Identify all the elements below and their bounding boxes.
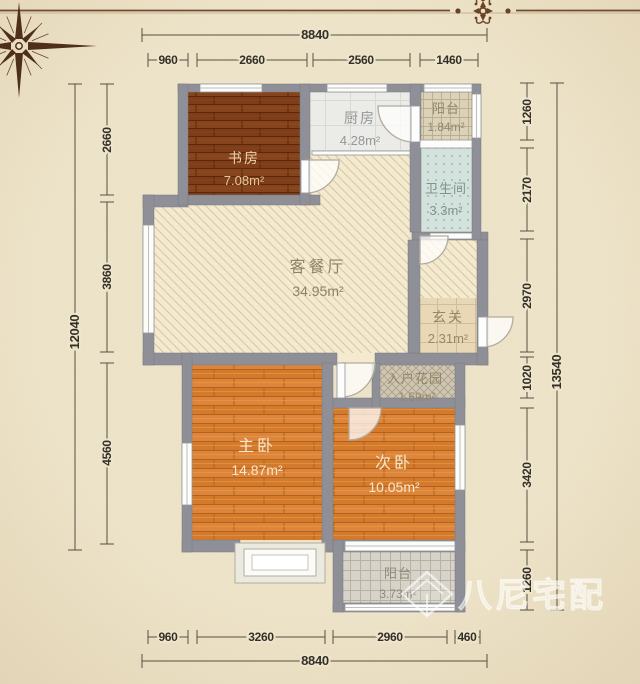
dim-right-0: 1260 [520, 99, 534, 125]
dim-right-4: 3420 [520, 462, 534, 488]
watermark-text: 八尼宅配 [458, 576, 606, 615]
kitchen-name-label: 厨房 [344, 110, 376, 126]
dim-bottom-2: 2960 [377, 630, 403, 644]
balcony-top-area-label: 1.84m² [427, 120, 464, 134]
dim-top-total: 8840 [301, 27, 329, 42]
dim-left-2: 4560 [100, 440, 114, 466]
living-dining-area-label: 34.95m² [292, 283, 344, 299]
floor-plan-page: 书房 7.08m² 厨房 4.28m² 阳台 1.84m² 卫生间 3.3m² … [0, 0, 640, 684]
dim-right-3: 1020 [520, 365, 534, 391]
watermark: 八尼宅配 [402, 572, 606, 616]
entry-garden-name-label: 入户花园 [387, 371, 443, 386]
dim-left-total: 12040 [67, 315, 82, 350]
bathroom-name-label: 卫生间 [425, 181, 467, 196]
bay-window [235, 543, 325, 583]
dim-top-0: 960 [158, 53, 178, 67]
dim-right-2: 2970 [520, 283, 534, 309]
second-bedroom-name-label: 次卧 [375, 454, 413, 472]
kitchen-counter-sill [312, 151, 410, 155]
floor-plan-canvas: 书房 7.08m² 厨房 4.28m² 阳台 1.84m² 卫生间 3.3m² … [0, 0, 640, 684]
kitchen-door-leaf [411, 106, 420, 142]
master-bedroom-name-label: 主卧 [238, 437, 276, 455]
dim-bottom-total: 8840 [301, 653, 329, 668]
balcony-top-name-label: 阳台 [432, 101, 460, 116]
study-area-label: 7.08m² [224, 173, 265, 188]
kitchen-area-label: 4.28m² [340, 133, 381, 148]
dim-right-1: 2170 [520, 177, 534, 203]
entry-door-leaf [478, 317, 487, 347]
floor-plan: 书房 7.08m² 厨房 4.28m² 阳台 1.84m² 卫生间 3.3m² … [143, 84, 513, 612]
entry-garden-area-label: 1.59m² [398, 390, 435, 404]
dim-right-total: 13540 [549, 355, 564, 390]
balcony-bottom-name-label: 阳台 [384, 566, 412, 581]
second-bedroom-area-label: 10.05m² [368, 479, 420, 495]
bathroom-area-label: 3.3m² [429, 203, 463, 218]
study-door-leaf [301, 160, 309, 193]
dim-bottom-1: 3260 [248, 630, 274, 644]
study-name-label: 书房 [228, 150, 260, 166]
dim-left-1: 3860 [100, 264, 114, 290]
living-dining-name-label: 客餐厅 [289, 258, 346, 276]
dim-top-2: 2560 [348, 53, 374, 67]
hallway-floor [337, 353, 375, 363]
entry-hall-name-label: 玄关 [432, 309, 464, 325]
master-bedroom-area-label: 14.87m² [231, 462, 283, 478]
dim-bottom-0: 960 [158, 630, 178, 644]
entry-hall-area-label: 2.31m² [428, 331, 469, 346]
window-sill [420, 140, 472, 148]
master-door-leaf [337, 363, 345, 398]
dim-top-3: 1460 [436, 53, 462, 67]
dim-bottom-3: 460 [457, 630, 477, 644]
dim-left-0: 2660 [100, 127, 114, 153]
dim-top-1: 2660 [239, 53, 265, 67]
